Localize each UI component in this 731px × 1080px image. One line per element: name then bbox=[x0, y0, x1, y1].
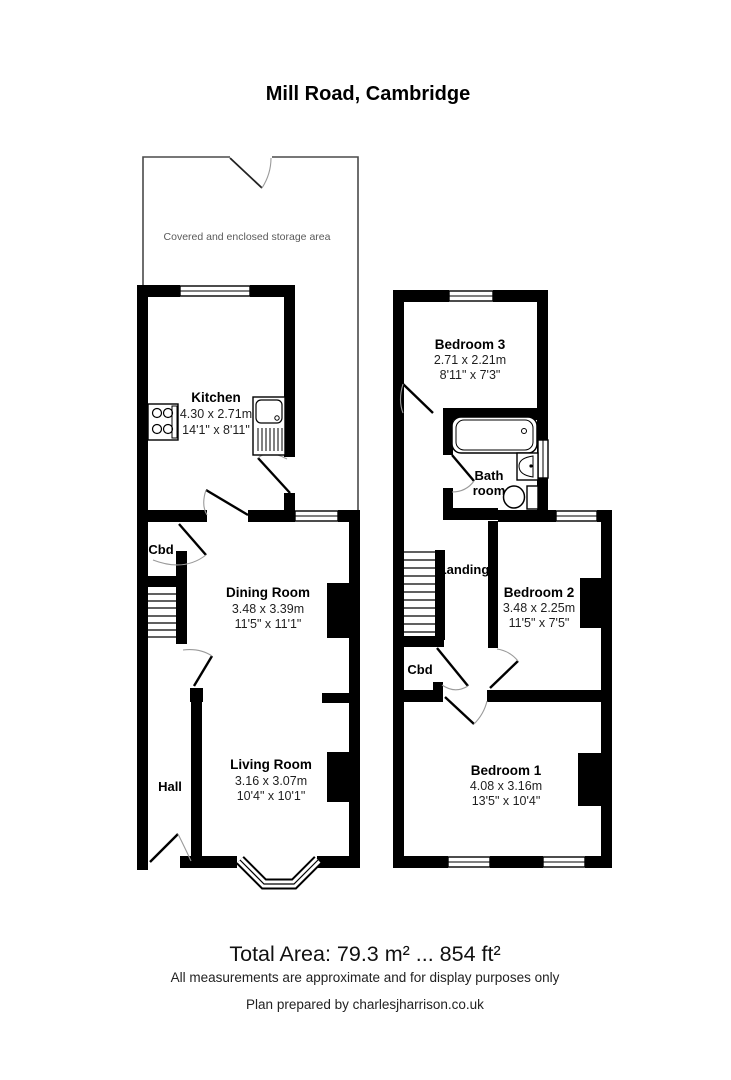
hall-door-arc bbox=[183, 650, 212, 656]
bedroom3-metric: 2.71 x 2.21m bbox=[434, 353, 506, 367]
bedroom1-label: Bedroom 1 bbox=[471, 763, 542, 778]
floorplan-page: Mill Road, Cambridge Covered and enclose… bbox=[0, 0, 731, 1080]
bedroom1-door-arc bbox=[474, 701, 487, 724]
living-room-label: Living Room bbox=[230, 757, 312, 772]
landing-label: Landing bbox=[439, 562, 490, 577]
bedroom3-label: Bedroom 3 bbox=[435, 337, 506, 352]
living-room-metric: 3.16 x 3.07m bbox=[235, 774, 307, 788]
ground-floor-plan: Covered and enclosed storage area bbox=[137, 157, 360, 884]
bedroom2-label: Bedroom 2 bbox=[504, 585, 575, 600]
storage-door-arc bbox=[262, 158, 271, 188]
bedroom2-door-leaf bbox=[490, 661, 518, 688]
bedroom1-window-right-icon bbox=[543, 857, 585, 867]
dining-room-label: Dining Room bbox=[226, 585, 310, 600]
bedroom1-metric: 4.08 x 3.16m bbox=[470, 779, 542, 793]
living-room-imperial: 10'4" x 10'1" bbox=[237, 789, 306, 803]
kitchen-imperial: 14'1" x 8'11" bbox=[182, 423, 250, 437]
bedroom1-door-leaf bbox=[445, 697, 474, 724]
bedroom1-chimney-breast bbox=[578, 753, 612, 806]
kitchen-door-leaf bbox=[206, 490, 248, 515]
bedroom2-door-arc bbox=[497, 649, 518, 661]
footer: Total Area: 79.3 m² ... 854 ft² All meas… bbox=[171, 942, 560, 1012]
floorplan-svg: Mill Road, Cambridge Covered and enclose… bbox=[0, 0, 731, 1080]
hall-door-leaf bbox=[194, 656, 212, 686]
first-floor-plan: Bedroom 3 2.71 x 2.21m 8'11" x 7'3" Bath… bbox=[393, 290, 612, 868]
dining-room-imperial: 11'5" x 11'1" bbox=[235, 617, 302, 631]
total-area-text: Total Area: 79.3 m² ... 854 ft² bbox=[229, 942, 500, 966]
toilet-icon bbox=[504, 486, 539, 509]
bathroom-window-icon bbox=[538, 440, 548, 478]
storage-wall bbox=[143, 157, 230, 290]
bedroom3-window-icon bbox=[449, 291, 493, 301]
hall-label: Hall bbox=[158, 779, 182, 794]
bedroom1-window-left-icon bbox=[448, 857, 490, 867]
kitchen-window-icon bbox=[180, 286, 250, 296]
cupboard-label: Cbd bbox=[148, 542, 173, 557]
bathroom-label-line1: Bath bbox=[475, 468, 504, 483]
cupboard-door-arc bbox=[442, 685, 468, 690]
page-title: Mill Road, Cambridge bbox=[266, 83, 470, 105]
bedroom1-imperial: 13'5" x 10'4" bbox=[472, 794, 541, 808]
dining-chimney-breast bbox=[327, 583, 360, 638]
cupboard-door-leaf bbox=[437, 648, 468, 686]
bedroom2-window-icon bbox=[556, 511, 597, 521]
back-door-leaf bbox=[258, 458, 290, 493]
bathroom-door-leaf bbox=[452, 455, 474, 481]
bay-window-icon bbox=[240, 860, 318, 884]
dining-room-metric: 3.48 x 3.39m bbox=[232, 602, 304, 616]
bedroom2-metric: 3.48 x 2.25m bbox=[503, 601, 575, 615]
dining-window-icon bbox=[295, 511, 338, 521]
kitchen-sink-icon bbox=[253, 397, 285, 455]
kitchen-metric: 4.30 x 2.71m bbox=[180, 407, 252, 421]
front-door-leaf bbox=[150, 834, 178, 862]
first-floor-stairs bbox=[404, 552, 435, 632]
cupboard-door-leaf bbox=[179, 524, 206, 555]
credit-text: Plan prepared by charlesjharrison.co.uk bbox=[246, 997, 484, 1012]
bathroom-door-arc bbox=[452, 481, 474, 492]
living-chimney-breast bbox=[327, 752, 360, 802]
disclaimer-text: All measurements are approximate and for… bbox=[171, 970, 560, 985]
basin-icon bbox=[517, 453, 538, 480]
bath-icon bbox=[452, 417, 537, 453]
storage-area: Covered and enclosed storage area bbox=[143, 157, 358, 510]
storage-area-label: Covered and enclosed storage area bbox=[164, 231, 331, 243]
bedroom3-imperial: 8'11" x 7'3" bbox=[440, 368, 501, 382]
ground-stairs bbox=[148, 594, 176, 637]
first-floor-cupboard-label: Cbd bbox=[407, 662, 432, 677]
bedroom2-chimney-breast bbox=[580, 578, 612, 628]
bathroom-label-line2: room bbox=[473, 483, 506, 498]
storage-door-leaf bbox=[230, 158, 262, 188]
bedroom2-imperial: 11'5" x 7'5" bbox=[509, 616, 570, 630]
kitchen-label: Kitchen bbox=[191, 390, 241, 405]
bedroom3-door-leaf bbox=[403, 384, 433, 413]
hob-icon bbox=[148, 404, 178, 440]
